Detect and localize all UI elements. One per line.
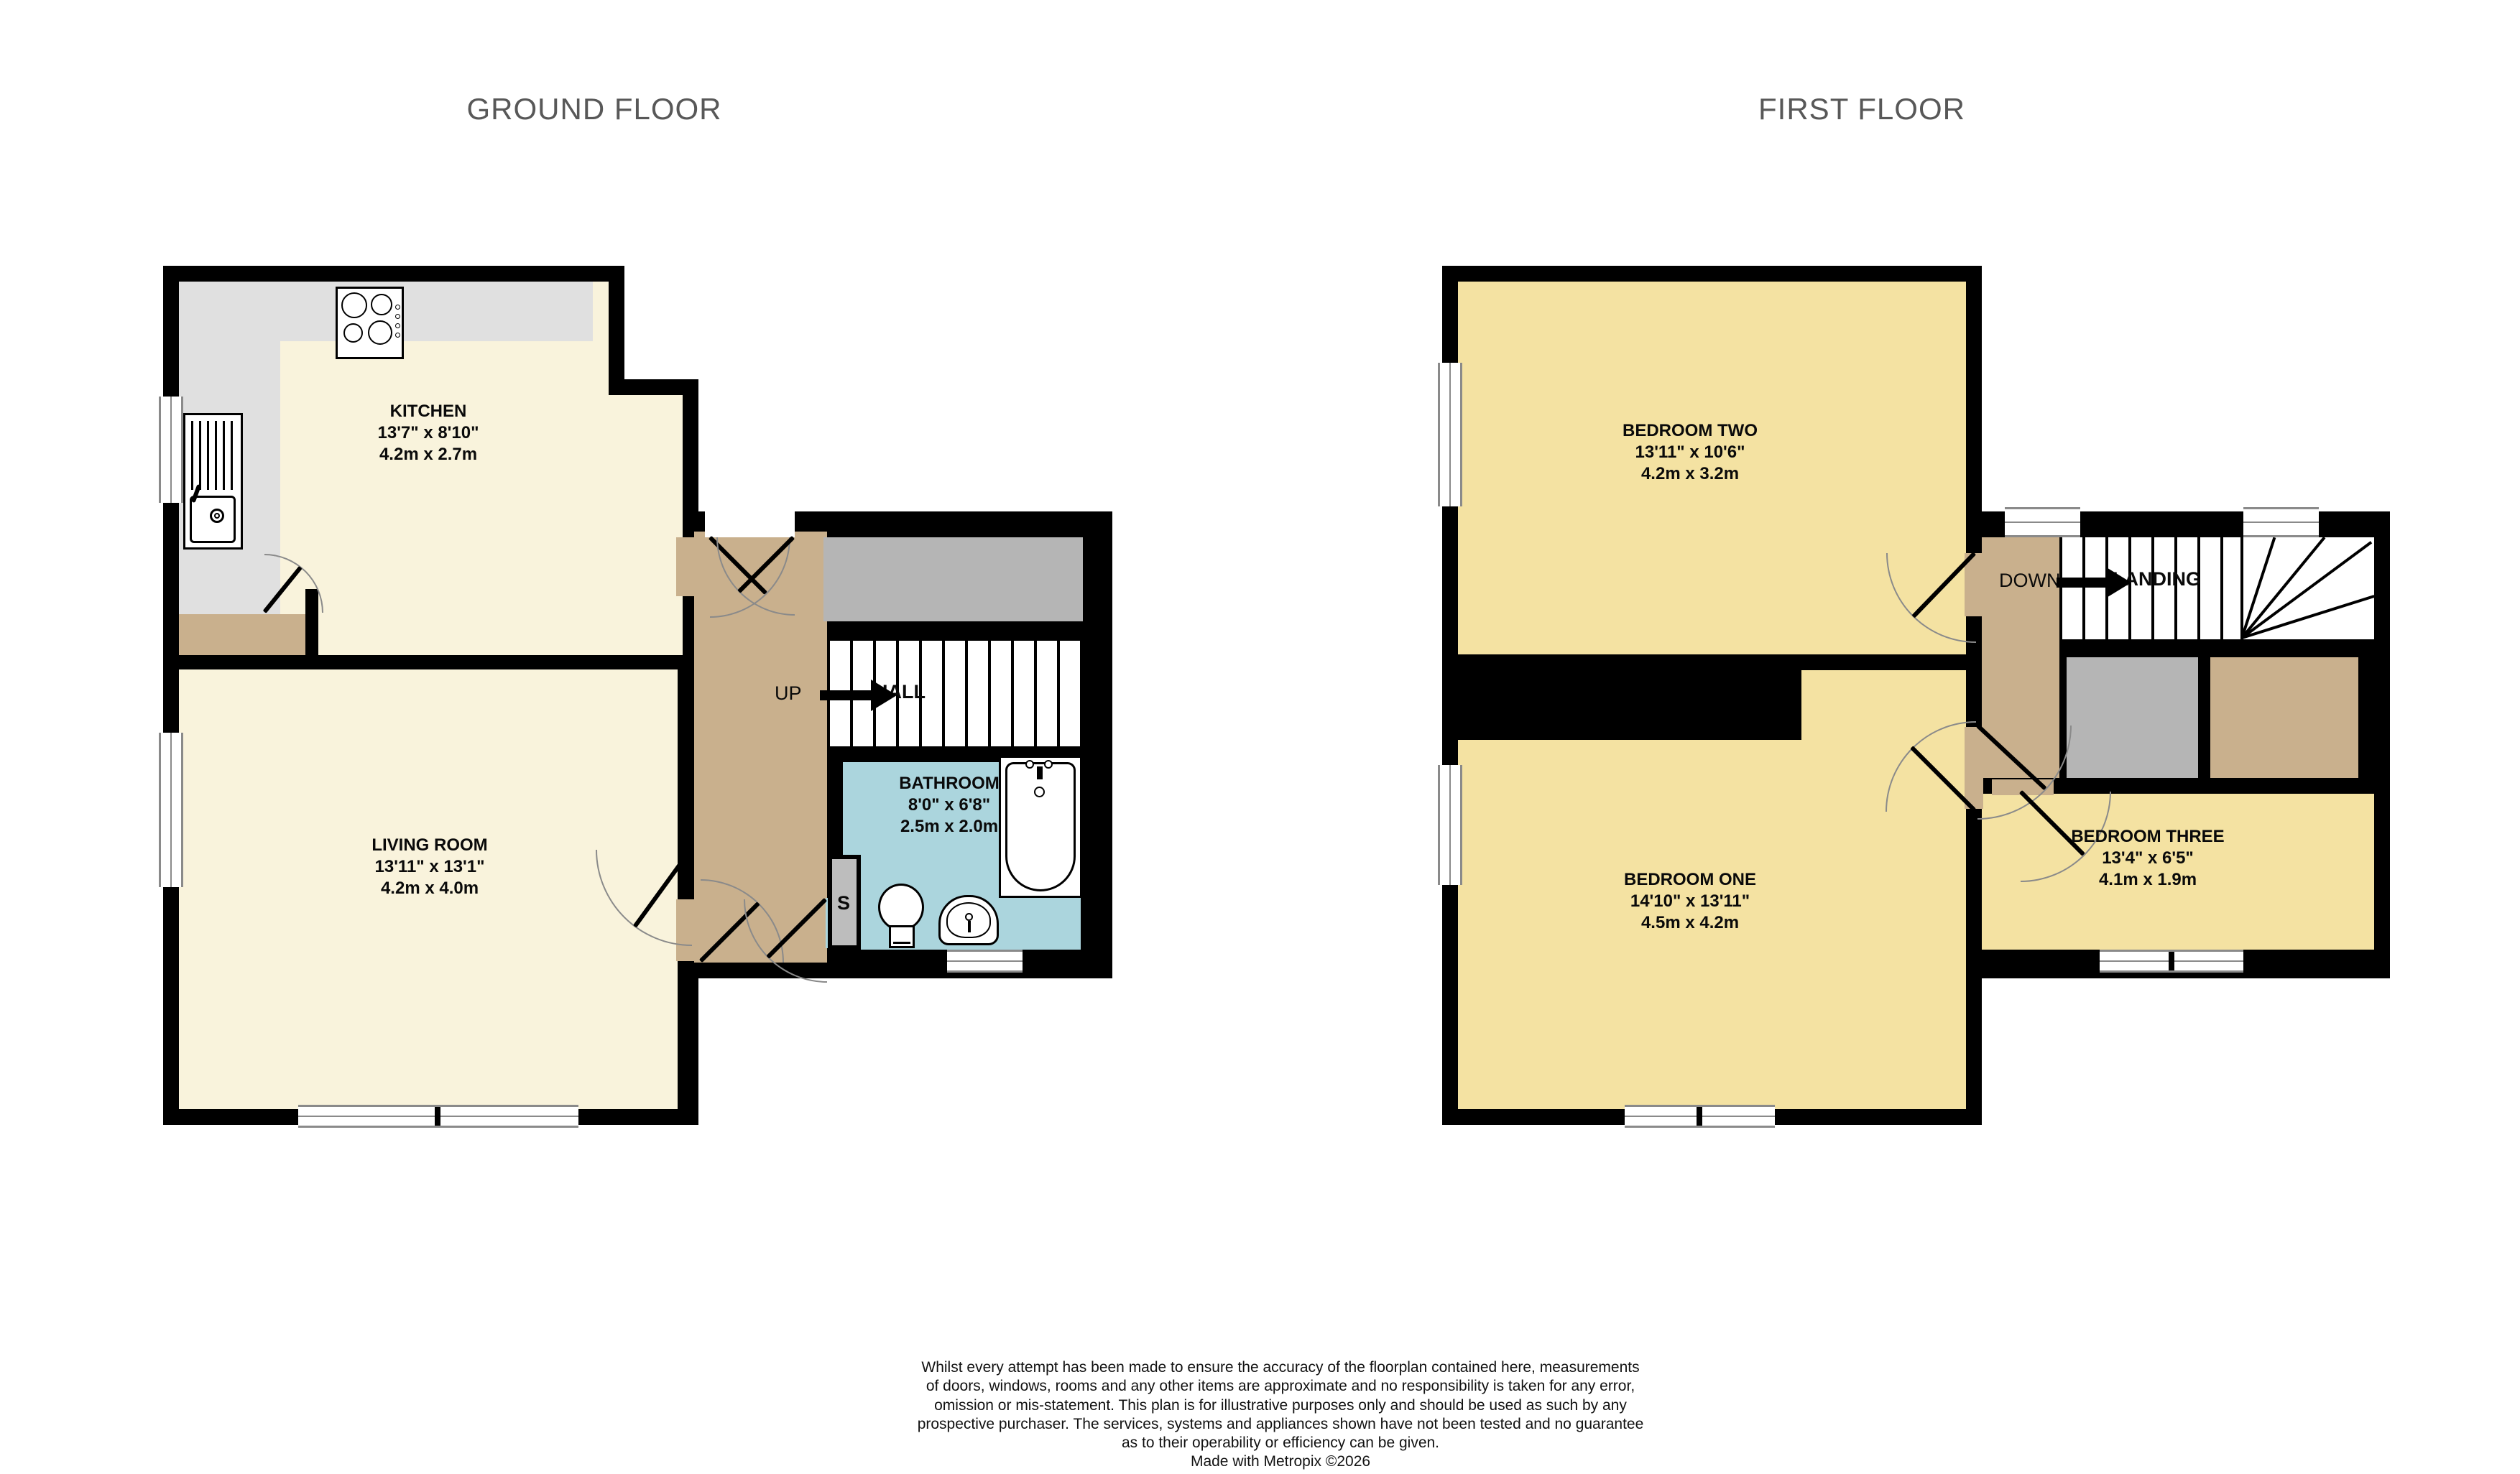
living-room-label: LIVING ROOM 13'11" x 13'1" 4.2m x 4.0m: [322, 835, 537, 899]
living-room-front-window: [298, 1105, 578, 1128]
bedroom-three-window: [2100, 950, 2243, 973]
sink-icon: [183, 413, 243, 550]
ff-landing-nook: [2210, 657, 2358, 778]
first-floor-title: FIRST FLOOR: [1610, 92, 2113, 126]
room-name: BEDROOM THREE: [2040, 826, 2256, 848]
bedroom-two-window: [1438, 363, 1462, 506]
room-size-metric: 4.2m x 4.0m: [322, 878, 537, 899]
room-name: BEDROOM TWO: [1582, 420, 1798, 442]
disclaimer-line: Whilst every attempt has been made to en…: [777, 1358, 1783, 1377]
ground-floor-title: GROUND FLOOR: [343, 92, 846, 126]
room-size-imperial: 13'4" x 6'5": [2040, 848, 2256, 869]
down-arrow-head-icon: [2105, 567, 2131, 598]
room-name: BEDROOM ONE: [1582, 869, 1798, 891]
room-size-imperial: 13'11" x 10'6": [1582, 442, 1798, 463]
gf-hall-recess: [179, 614, 305, 655]
toilet-icon: [878, 884, 924, 931]
room-size-metric: 4.2m x 3.2m: [1582, 463, 1798, 485]
basin-icon: [938, 895, 999, 945]
room-size-imperial: 13'7" x 8'10": [320, 422, 536, 444]
up-arrow-icon: [820, 690, 871, 700]
kitchen-floor-right: [609, 395, 683, 655]
floorplan-canvas: GROUND FLOOR FIRST FLOOR: [0, 0, 2520, 1474]
disclaimer-line: prospective purchaser. The services, sys…: [777, 1415, 1783, 1434]
bathroom-window: [947, 950, 1023, 973]
down-arrow-icon: [2057, 578, 2105, 588]
room-size-metric: 4.2m x 2.7m: [320, 444, 536, 465]
bedroom-one-front-window: [1625, 1105, 1775, 1128]
landing-window-1: [2005, 507, 2080, 537]
room-name: KITCHEN: [320, 401, 536, 422]
hall-kitchen-opening: [676, 537, 696, 596]
front-entrance-opening: [705, 507, 795, 537]
bedroom-three-label: BEDROOM THREE 13'4" x 6'5" 4.1m x 1.9m: [2040, 826, 2256, 891]
room-name: BATHROOM: [841, 773, 1057, 794]
room-size-imperial: 13'11" x 13'1": [322, 856, 537, 878]
bedroom-one-side-window: [1438, 765, 1462, 885]
up-label: UP: [775, 682, 802, 705]
disclaimer-line: Made with Metropix ©2026: [777, 1452, 1783, 1471]
living-room-side-window: [159, 733, 183, 887]
kitchen-window: [159, 397, 183, 503]
room-size-imperial: 8'0" x 6'8": [841, 794, 1057, 816]
room-size-metric: 4.5m x 4.2m: [1582, 912, 1798, 934]
up-arrow-head-icon: [871, 680, 897, 711]
gf-top-right-notch: [624, 266, 698, 379]
bathroom-label: BATHROOM 8'0" x 6'8" 2.5m x 2.0m: [841, 773, 1057, 838]
room-name: LIVING ROOM: [322, 835, 537, 856]
ff-stair-winder-edge: [2240, 537, 2243, 639]
cupboard-label: S: [837, 892, 850, 914]
hob-icon: [336, 287, 404, 359]
ff-stair-void-gray: [2067, 657, 2198, 778]
disclaimer: Whilst every attempt has been made to en…: [777, 1358, 1783, 1472]
landing-window-2: [2243, 507, 2319, 537]
down-label: DOWN: [1999, 570, 2060, 592]
bedroom-one-label: BEDROOM ONE 14'10" x 13'11" 4.5m x 4.2m: [1582, 869, 1798, 934]
cupboard: S: [828, 855, 861, 950]
toilet-cistern: [889, 925, 915, 948]
gf-stair-head-gray: [823, 537, 1083, 621]
disclaimer-line: of doors, windows, rooms and any other i…: [777, 1377, 1783, 1396]
disclaimer-line: as to their operability or efficiency ca…: [777, 1434, 1783, 1452]
room-size-metric: 2.5m x 2.0m: [841, 816, 1057, 838]
bedroom-two-label: BEDROOM TWO 13'11" x 10'6" 4.2m x 3.2m: [1582, 420, 1798, 485]
room-size-metric: 4.1m x 1.9m: [2040, 869, 2256, 891]
kitchen-label: KITCHEN 13'7" x 8'10" 4.2m x 2.7m: [320, 401, 536, 465]
disclaimer-line: omission or mis-statement. This plan is …: [777, 1396, 1783, 1415]
room-size-imperial: 14'10" x 13'11": [1582, 891, 1798, 912]
